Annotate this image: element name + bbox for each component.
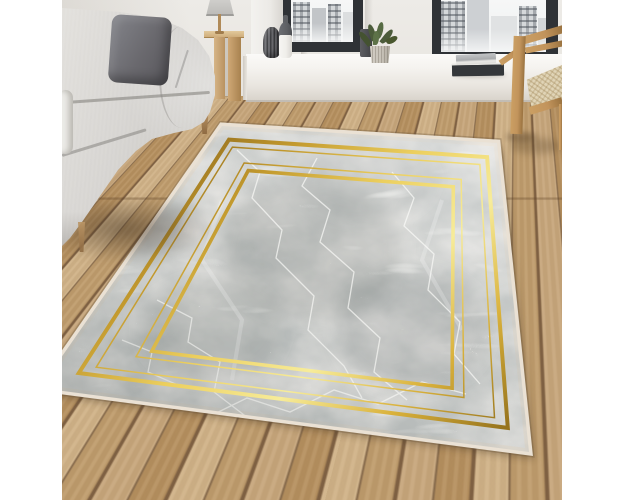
screenshot-canvas (0, 0, 625, 500)
product-photo (62, 0, 562, 500)
throw-pillow (108, 14, 173, 86)
light-pillow (62, 90, 73, 154)
cushion-seam (62, 128, 147, 157)
grey-sofa (62, 0, 232, 280)
